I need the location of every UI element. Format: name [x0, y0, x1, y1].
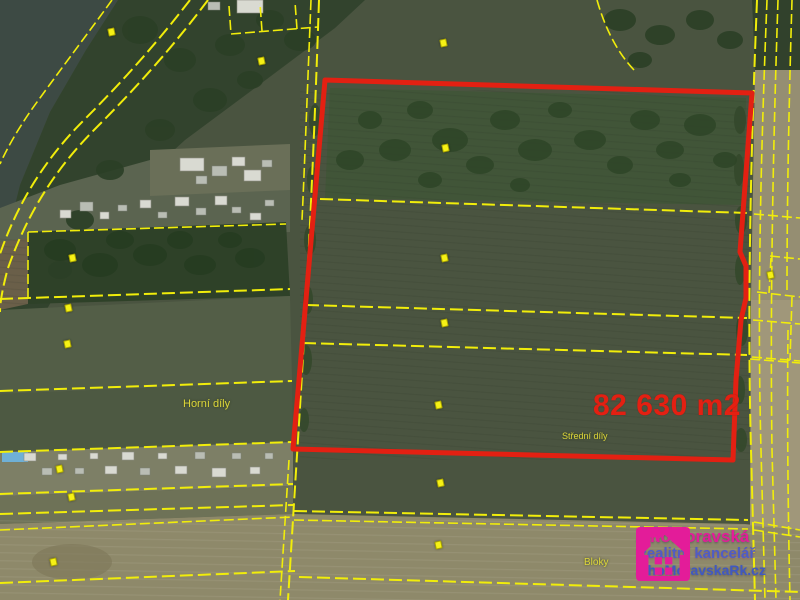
parcel-marker	[439, 38, 448, 47]
house-window	[655, 557, 673, 575]
parcel-marker	[55, 464, 64, 473]
parcel-marker	[67, 492, 76, 501]
agency-watermark: JihoMoravská Realitní kancelář JihoMorav…	[636, 527, 766, 579]
parcel-marker	[766, 270, 775, 279]
building	[237, 0, 263, 13]
place-label-horni-dily: Horní díly	[183, 398, 230, 410]
parcel-marker	[49, 557, 58, 566]
parcel-marker	[64, 303, 73, 312]
parcel-marker	[434, 540, 443, 549]
aerial-map[interactable]: Horní díly Střední díly Bloky 82 630 m2 …	[0, 0, 800, 600]
parcel-marker	[436, 478, 445, 487]
place-label-stredni-dily: Střední díly	[562, 431, 608, 441]
map-overlay-svg	[0, 0, 800, 600]
place-label-bloky: Bloky	[584, 557, 608, 568]
field-horni-dily	[0, 296, 292, 394]
house-icon	[636, 527, 690, 581]
parcel-marker	[434, 400, 443, 409]
parcel-marker	[107, 27, 116, 36]
parcel-marker	[440, 318, 449, 327]
parcel-marker	[68, 253, 77, 262]
parcel-marker	[257, 56, 266, 65]
parcel-marker	[441, 143, 450, 152]
parcel-marker	[440, 253, 449, 262]
parcel-area-label: 82 630 m2	[593, 389, 741, 423]
parcel-marker	[63, 339, 72, 348]
